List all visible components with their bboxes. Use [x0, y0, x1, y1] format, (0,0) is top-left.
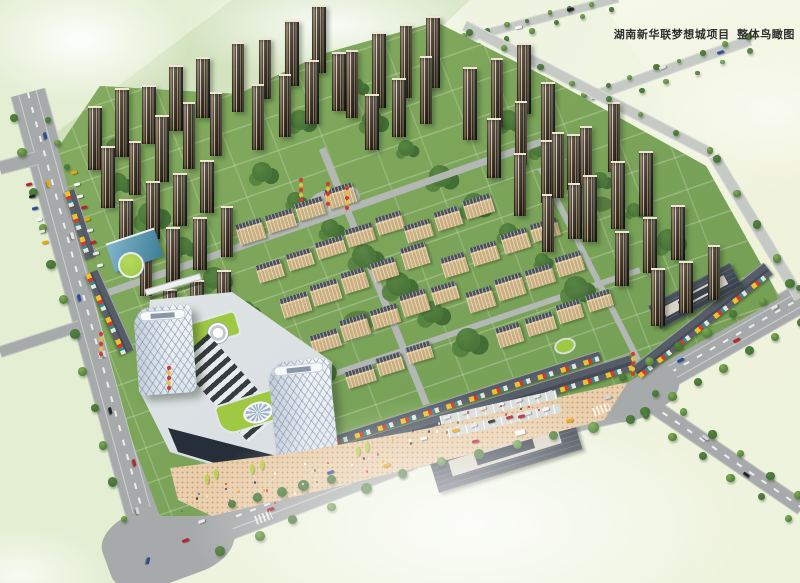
scene-layer [0, 0, 800, 583]
residential-tower [611, 161, 625, 229]
tree-icon [785, 279, 795, 289]
tree-icon [694, 378, 702, 386]
tree-icon [766, 472, 775, 481]
residential-tower [193, 217, 207, 270]
residential-tower [679, 261, 693, 313]
residential-tower [392, 78, 406, 137]
residential-tower [221, 206, 233, 257]
tree-icon [99, 441, 108, 450]
residential-tower [166, 227, 181, 283]
balloon-icon [345, 191, 349, 195]
tree-icon [10, 114, 18, 122]
balloon-icon [326, 182, 330, 186]
birdseye-rendering-canvas: 湖南新华联梦想城项目 整体鸟瞰图 [0, 0, 800, 583]
balloon-icon [167, 366, 171, 370]
residential-tower [463, 67, 478, 140]
residential-tower [491, 58, 504, 127]
balloon-icon [99, 347, 103, 351]
wash-top-left-road [0, 0, 190, 105]
tree-icon [758, 493, 765, 500]
balloon-icon [345, 201, 349, 205]
tree-icon [674, 342, 683, 351]
balloon-icon [167, 376, 171, 380]
balloon-icon [345, 186, 349, 190]
balloon-icon [167, 381, 171, 385]
balloon-icon [299, 198, 303, 202]
balloon-icon [326, 192, 330, 196]
balloon-icon [631, 362, 635, 366]
person-dot [182, 498, 184, 501]
residential-tower [487, 118, 502, 178]
residential-tower [129, 141, 142, 195]
tree-icon [529, 28, 534, 33]
residential-tower [514, 153, 527, 216]
tree-icon [554, 20, 559, 25]
project-title: 湖南新华联梦想城项目 整体鸟瞰图 [614, 26, 795, 42]
tree-icon [91, 404, 99, 412]
wash-bottom-left [0, 525, 110, 583]
residential-tower [169, 65, 183, 131]
tree-icon [707, 147, 714, 154]
residential-tower [365, 94, 380, 150]
residential-tower [639, 151, 652, 216]
balloon-icon [326, 187, 330, 191]
tree-icon [753, 220, 762, 229]
tree-icon [702, 328, 712, 338]
residential-tower [210, 92, 223, 156]
residential-tower [542, 194, 555, 252]
tree-icon [773, 254, 781, 262]
residential-tower [88, 106, 102, 170]
tree-icon [108, 477, 117, 486]
tree-icon [70, 329, 80, 339]
tree-icon [78, 367, 87, 376]
residential-tower [651, 268, 665, 326]
residential-tower [615, 231, 629, 286]
residential-tower [346, 50, 358, 118]
residential-tower [173, 173, 186, 226]
residential-tower [183, 102, 195, 169]
balloon-icon [631, 352, 635, 356]
tree-icon [580, 14, 585, 19]
residential-tower [552, 132, 564, 198]
balloon-icon [99, 342, 103, 346]
tree-icon [537, 64, 544, 71]
residential-tower [200, 160, 214, 213]
balloon-icon [345, 206, 349, 210]
balloon-icon [99, 332, 103, 336]
tree-icon [794, 491, 800, 499]
balloon-icon [299, 188, 303, 192]
balloon-icon [326, 202, 330, 206]
residential-tower [708, 245, 721, 300]
balloon-icon [631, 357, 635, 361]
residential-tower [252, 84, 265, 150]
residential-tower [420, 56, 432, 124]
residential-tower [643, 217, 657, 273]
balloon-icon [99, 352, 103, 356]
balloon-icon [299, 183, 303, 187]
residential-tower [671, 205, 685, 260]
residential-tower [305, 60, 318, 124]
residential-tower [232, 42, 244, 112]
mall-tower-west [133, 304, 197, 396]
tree-icon [466, 29, 473, 36]
tree-icon [619, 374, 627, 382]
residential-tower [155, 115, 170, 182]
balloon-icon [326, 197, 330, 201]
wash-bottom-center [190, 395, 750, 583]
tree-icon [54, 140, 61, 147]
balloon-icon [299, 193, 303, 197]
tree-icon [609, 7, 613, 11]
balloon-icon [631, 367, 635, 371]
tree-cluster [456, 328, 480, 352]
residential-tower [101, 146, 115, 208]
tree-icon [759, 298, 767, 306]
balloon-icon [299, 178, 303, 182]
tree-icon [719, 364, 728, 373]
balloon-icon [167, 386, 171, 390]
tree-icon [796, 285, 800, 291]
tree-icon [639, 88, 645, 94]
balloon-icon [99, 337, 103, 341]
balloon-icon [345, 196, 349, 200]
residential-tower [115, 88, 129, 157]
tree-icon [589, 2, 594, 7]
residential-tower [332, 52, 345, 111]
balloon-icon [631, 372, 635, 376]
residential-tower [196, 57, 209, 118]
residential-tower [568, 183, 583, 239]
tree-icon [673, 130, 679, 136]
tree-icon [504, 22, 509, 27]
residential-tower [583, 175, 598, 242]
residential-tower [279, 74, 291, 137]
tree-icon [46, 260, 55, 269]
round-lawn [118, 252, 144, 278]
tree-icon [606, 96, 612, 102]
balloon-icon [167, 371, 171, 375]
tree-icon [17, 148, 27, 158]
